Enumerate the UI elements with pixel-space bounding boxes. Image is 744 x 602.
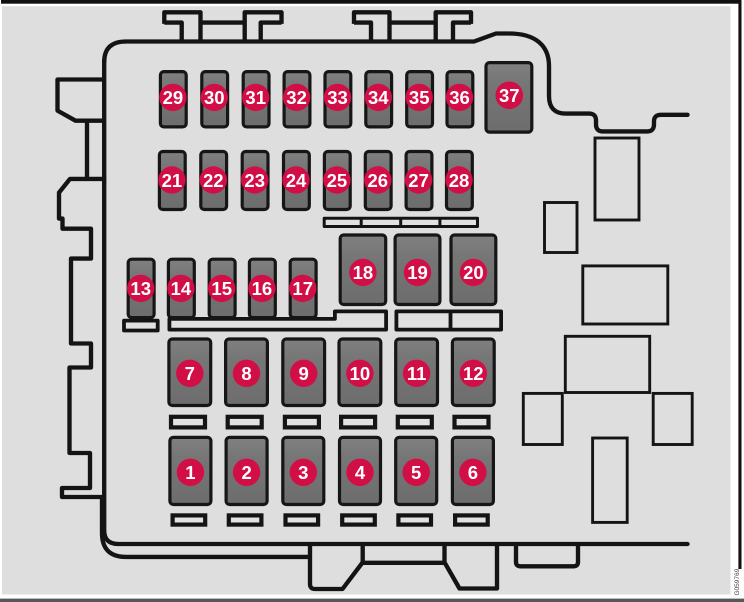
svg-text:G059769: G059769 <box>734 568 741 595</box>
svg-text:30: 30 <box>204 87 225 108</box>
svg-text:20: 20 <box>463 262 484 283</box>
svg-text:15: 15 <box>211 278 232 299</box>
svg-text:13: 13 <box>130 278 151 299</box>
svg-text:18: 18 <box>353 262 374 283</box>
svg-text:19: 19 <box>407 262 428 283</box>
svg-text:3: 3 <box>298 462 308 483</box>
svg-text:5: 5 <box>411 462 421 483</box>
svg-text:27: 27 <box>408 170 429 191</box>
svg-text:33: 33 <box>327 87 348 108</box>
svg-text:10: 10 <box>350 363 371 384</box>
svg-text:1: 1 <box>185 462 195 483</box>
svg-text:6: 6 <box>468 462 478 483</box>
svg-text:16: 16 <box>252 278 273 299</box>
svg-text:14: 14 <box>171 278 192 299</box>
svg-text:22: 22 <box>203 170 224 191</box>
svg-text:35: 35 <box>409 87 430 108</box>
svg-text:8: 8 <box>241 363 251 384</box>
svg-text:32: 32 <box>286 87 307 108</box>
svg-text:26: 26 <box>368 170 389 191</box>
svg-text:36: 36 <box>449 87 470 108</box>
svg-text:7: 7 <box>185 363 195 384</box>
svg-text:21: 21 <box>162 170 183 191</box>
svg-text:23: 23 <box>244 170 265 191</box>
svg-text:2: 2 <box>241 462 251 483</box>
svg-text:17: 17 <box>292 278 313 299</box>
svg-text:24: 24 <box>286 170 307 191</box>
svg-text:28: 28 <box>449 170 470 191</box>
svg-text:29: 29 <box>163 87 184 108</box>
svg-text:9: 9 <box>299 363 309 384</box>
svg-text:37: 37 <box>499 85 520 106</box>
svg-text:11: 11 <box>407 363 427 384</box>
svg-text:31: 31 <box>245 87 266 108</box>
svg-text:4: 4 <box>355 462 366 483</box>
svg-text:34: 34 <box>368 87 389 108</box>
svg-text:12: 12 <box>463 363 484 384</box>
svg-text:25: 25 <box>327 170 348 191</box>
